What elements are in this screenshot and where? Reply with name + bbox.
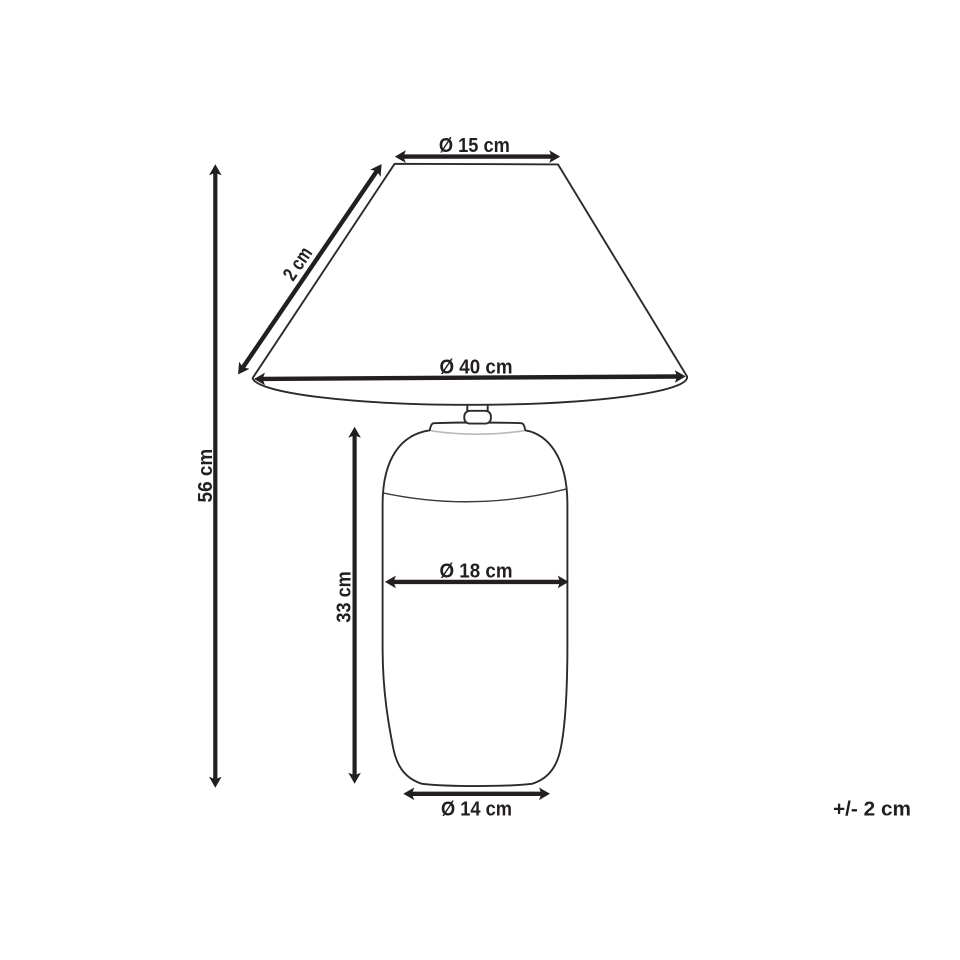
svg-text:Ø 18 cm: Ø 18 cm: [440, 560, 513, 582]
svg-text:Ø 40 cm: Ø 40 cm: [440, 356, 513, 378]
svg-text:33 cm: 33 cm: [334, 571, 356, 622]
svg-text:Ø 14 cm: Ø 14 cm: [441, 799, 512, 821]
svg-text:56 cm: 56 cm: [195, 449, 217, 503]
svg-text:+/- 2 cm: +/- 2 cm: [833, 798, 911, 820]
svg-text:Ø 15 cm: Ø 15 cm: [439, 135, 510, 157]
